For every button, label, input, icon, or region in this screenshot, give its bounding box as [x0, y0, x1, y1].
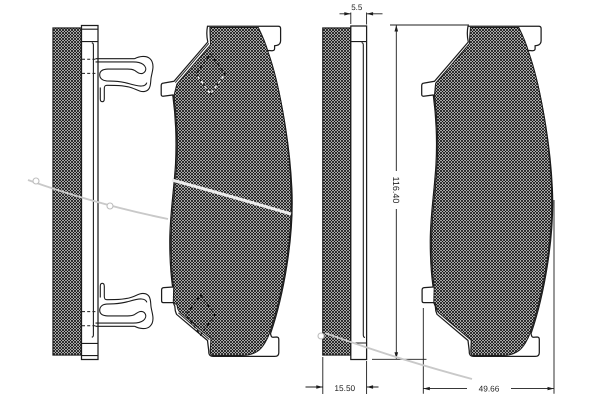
svg-text:5.5: 5.5	[351, 3, 363, 12]
svg-text:15.50: 15.50	[334, 383, 355, 393]
svg-text:49.66: 49.66	[479, 383, 500, 393]
svg-text:116.40: 116.40	[391, 177, 401, 204]
